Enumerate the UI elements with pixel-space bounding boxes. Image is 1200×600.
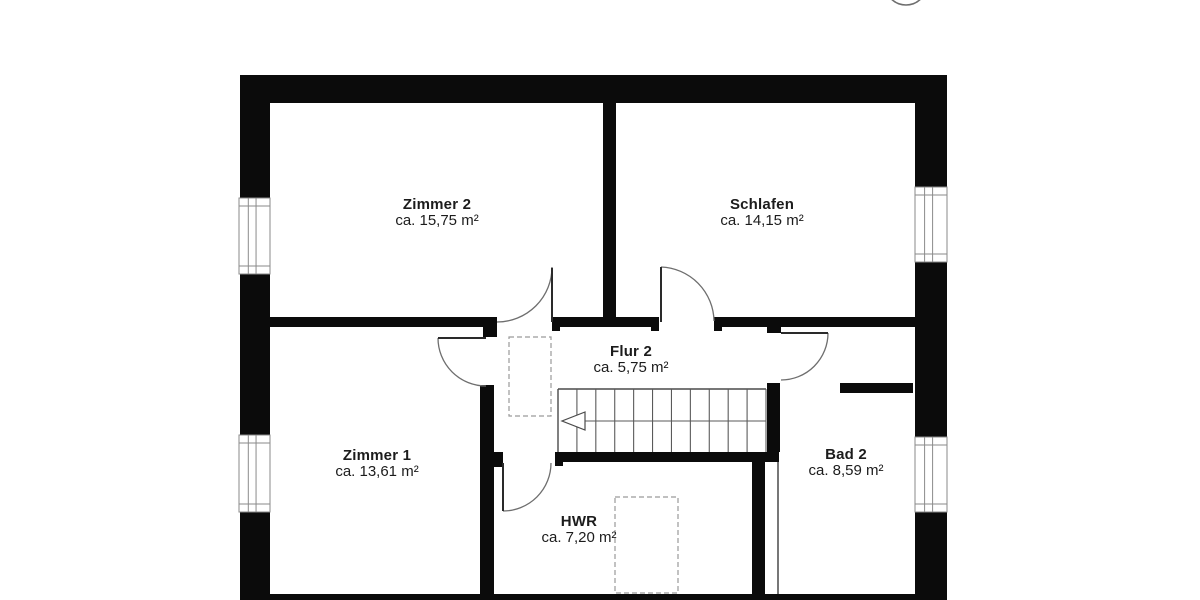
door-jamb-schlafen-left: [651, 317, 659, 331]
floorplan: Zimmer 2ca. 15,75 m²Schlafenca. 14,15 m²…: [0, 0, 1200, 600]
wall-corridor-left: [270, 317, 497, 327]
wall-hwr-right: [752, 462, 765, 600]
exterior-wall-left-middle: [240, 274, 270, 435]
room-area: ca. 8,59 m²: [808, 463, 883, 479]
wall-bad2-stub: [840, 383, 913, 393]
window-bad2-right: [915, 437, 947, 512]
door-jamb-zimmer2-left: [489, 317, 497, 331]
room-area: ca. 15,75 m²: [395, 213, 478, 229]
door-hwr-swing-arc: [503, 463, 551, 511]
room-label-bad2: Bad 2ca. 8,59 m²: [808, 447, 883, 479]
door-zimmer1-swing-arc: [438, 338, 486, 386]
room-area: ca. 14,15 m²: [720, 213, 803, 229]
room-name: Flur 2: [593, 344, 668, 360]
window-zimmer2-left: [239, 198, 270, 274]
room-label-flur2: Flur 2ca. 5,75 m²: [593, 344, 668, 376]
exterior-wall-left-upper: [240, 75, 270, 198]
floorplan-svg: [0, 0, 1200, 600]
window-schlafen-right: [915, 187, 947, 262]
partial-circle-glyph: [885, 0, 927, 5]
shaft-hwr-dashed: [615, 497, 678, 593]
exterior-wall-top: [240, 75, 947, 103]
room-name: HWR: [541, 514, 616, 530]
room-area: ca. 7,20 m²: [541, 530, 616, 546]
wall-zimmer1-right: [480, 385, 494, 600]
door-schlafen-swing-arc: [661, 267, 714, 321]
exterior-wall-left-lower: [240, 512, 270, 600]
room-label-schlafen: Schlafenca. 14,15 m²: [720, 197, 803, 229]
stairs-direction-arrow: [562, 412, 585, 430]
exterior-wall-bottom: [240, 594, 947, 600]
exterior-wall-right-lower: [915, 512, 947, 600]
wall-zimmer2-schlafen: [603, 103, 616, 317]
room-label-zimmer1: Zimmer 1ca. 13,61 m²: [335, 448, 418, 480]
room-label-zimmer2: Zimmer 2ca. 15,75 m²: [395, 197, 478, 229]
door-jamb-schlafen-right: [714, 317, 722, 331]
room-name: Schlafen: [720, 197, 803, 213]
wall-flur-bad2: [767, 383, 780, 452]
exterior-wall-right-upper: [915, 75, 947, 187]
room-label-hwr: HWRca. 7,20 m²: [541, 514, 616, 546]
wall-corridor-right: [714, 317, 915, 327]
door-zimmer2-swing-arc: [497, 267, 552, 322]
room-name: Zimmer 1: [335, 448, 418, 464]
room-name: Zimmer 2: [395, 197, 478, 213]
wall-under-stairs: [555, 452, 779, 462]
door-bad2-swing-arc: [781, 333, 828, 380]
exterior-wall-right-middle: [915, 262, 947, 437]
door-jamb-zimmer2-right: [552, 317, 560, 331]
door-jamb-hwr-right: [555, 452, 563, 466]
wall-corridor-middle: [552, 317, 659, 327]
room-name: Bad 2: [808, 447, 883, 463]
door-jamb-hwr-left: [490, 452, 503, 467]
room-area: ca. 13,61 m²: [335, 464, 418, 480]
room-area: ca. 5,75 m²: [593, 360, 668, 376]
shaft-flur2-dashed: [509, 337, 551, 416]
window-zimmer1-left: [239, 435, 270, 512]
door-jamb-bad2: [767, 317, 781, 333]
